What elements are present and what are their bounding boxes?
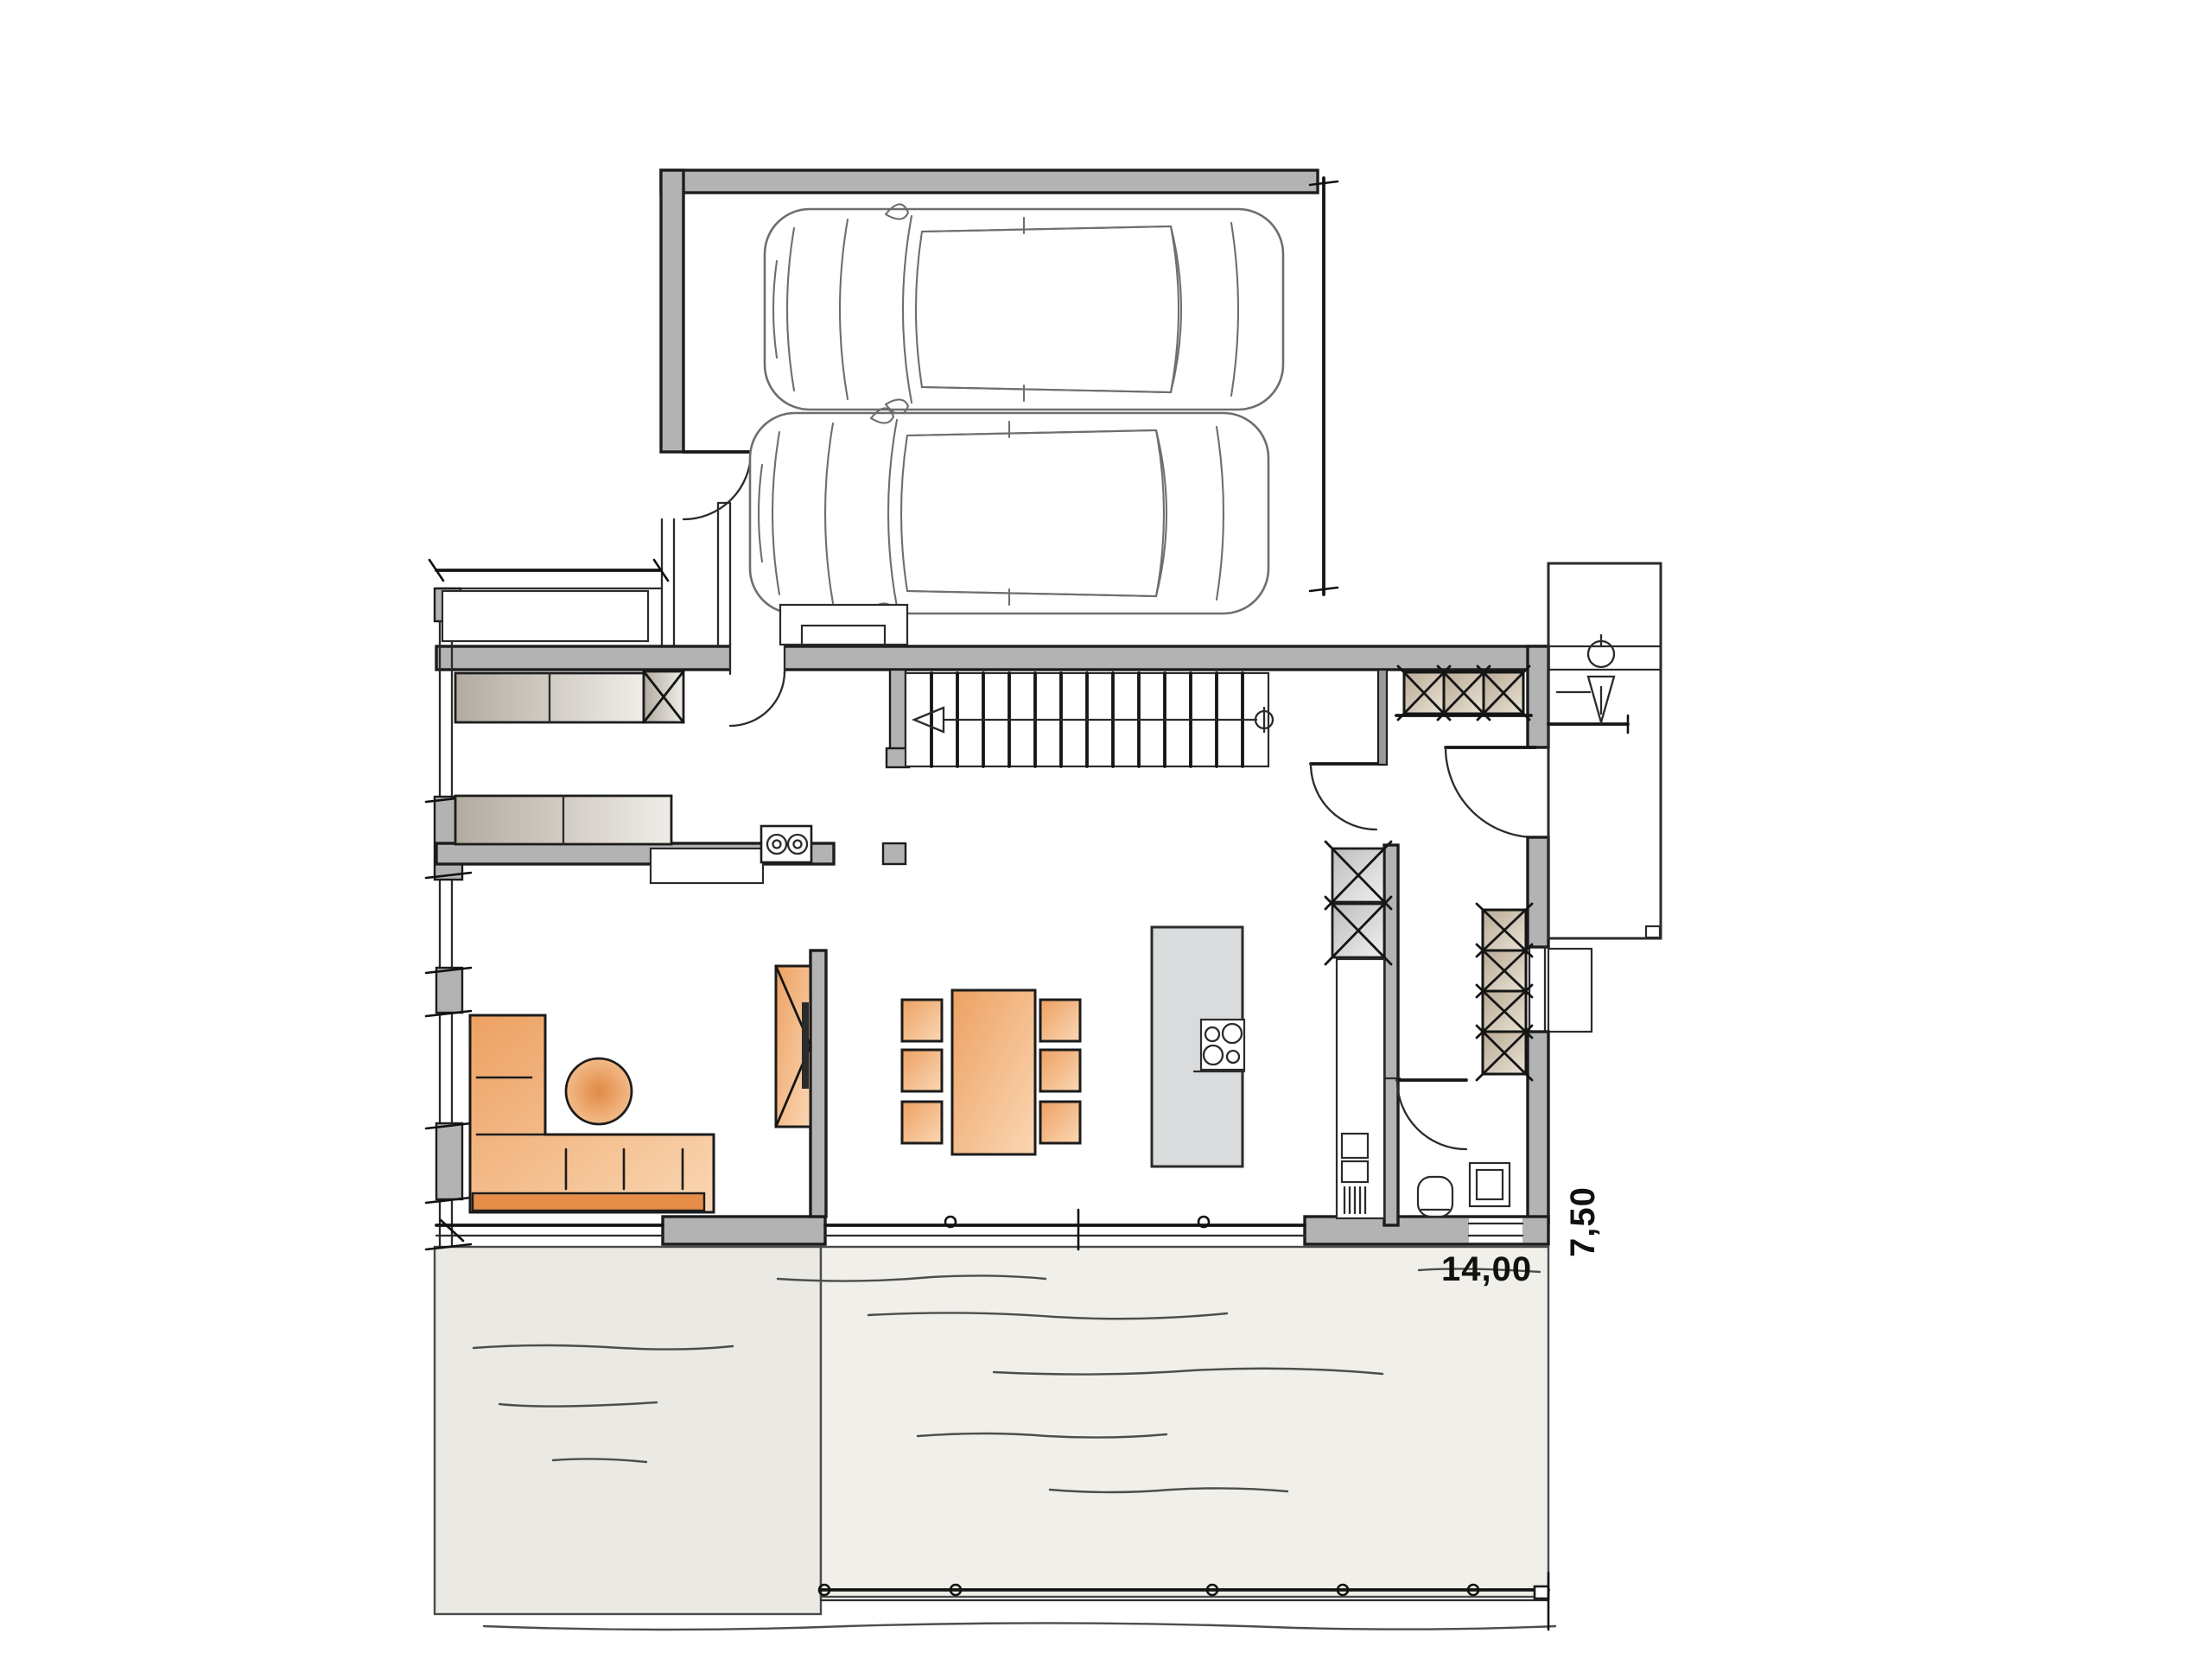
window-bay (1529, 947, 1592, 1032)
vestibule-door-opening (730, 644, 785, 672)
utility-door-swing (730, 671, 785, 726)
floor-plan-page: { "page": { "type": "architectural floor… (0, 0, 2212, 1659)
sofa-base (473, 1193, 704, 1211)
terrace-area (435, 1247, 1555, 1630)
hall-tall-cabinet (1477, 904, 1532, 1080)
kitchen-tall-cabinet (1325, 842, 1391, 964)
canopy-post (1646, 926, 1660, 938)
entry-area (1396, 666, 1532, 1080)
wc-washbasin (1470, 1163, 1510, 1206)
person-icon (1588, 635, 1614, 722)
wc-window-opening (1469, 1218, 1522, 1243)
floor-plan-canvas: 14,00 7,50 (0, 0, 2212, 1659)
doormat-step-inner (802, 626, 885, 645)
kitchen-wall-unit (1325, 842, 1398, 1225)
staircase (887, 670, 1387, 829)
garage-left-wall (661, 170, 683, 452)
terrace-depth-label: 7,50 (1564, 1186, 1602, 1257)
right-wall-upper (1528, 646, 1548, 747)
partition-wall (810, 950, 826, 1217)
twin-sink-unit (761, 826, 811, 862)
dining-chair (902, 1000, 942, 1041)
stair-partition (1378, 670, 1387, 765)
right-wall-lower (1528, 1032, 1548, 1224)
right-wall-mid (1528, 837, 1548, 947)
round-side-table (566, 1058, 632, 1124)
pantry-worktop (442, 591, 648, 641)
wc-room (1385, 1078, 1510, 1217)
terrace-left-slab (435, 1247, 821, 1614)
garage-door-edge (1310, 178, 1338, 594)
car-2 (750, 408, 1268, 618)
terrace-main-slab (821, 1247, 1548, 1597)
railing-end-post (1535, 1586, 1548, 1599)
wardrobe-closet (1396, 666, 1531, 720)
entrance-canopy (1548, 563, 1661, 938)
window-front (436, 1210, 1305, 1249)
kitchen-island (1152, 927, 1244, 1166)
tv-icon (802, 1002, 809, 1089)
dining-table (952, 990, 1035, 1154)
north-window-band (429, 560, 668, 588)
wc-toilet (1418, 1177, 1452, 1217)
tv-sideboard (776, 966, 810, 1127)
pantry-counter (651, 849, 763, 883)
garage (661, 170, 1338, 645)
dining-chair (902, 1050, 942, 1091)
hall-door-swing (1311, 764, 1376, 829)
dining-chair (1040, 1050, 1080, 1091)
pantry-room (442, 591, 811, 883)
wc-door-swing (1397, 1080, 1466, 1149)
dining-chair (1040, 1102, 1080, 1143)
terrace-width-label: 14,00 (1441, 1250, 1532, 1288)
dining-set (902, 990, 1080, 1154)
bottom-wall-left-segment (663, 1217, 825, 1244)
cooktop (1194, 1020, 1244, 1071)
living-area (470, 927, 1244, 1217)
dining-chair (1040, 1000, 1080, 1041)
appliance-box (644, 671, 683, 722)
top-wall (436, 646, 1548, 670)
car-1 (765, 204, 1283, 414)
dining-chair (902, 1102, 942, 1143)
garage-top-wall (661, 170, 1318, 193)
entrance-door (1446, 747, 1535, 837)
